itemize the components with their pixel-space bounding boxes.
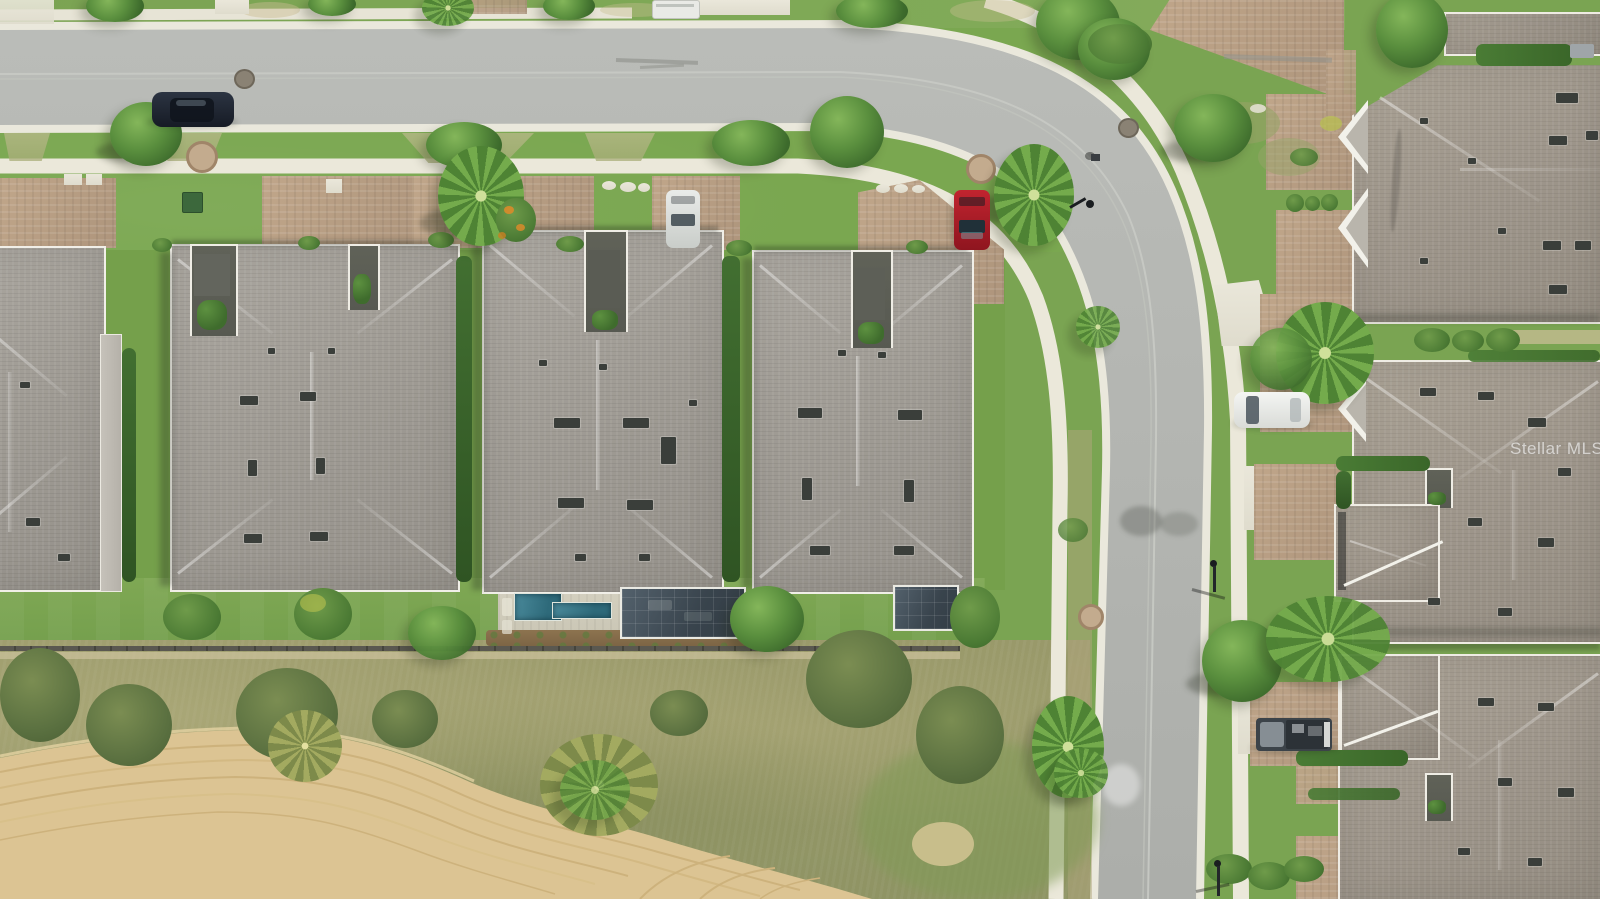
courtyard-plants: [1428, 492, 1446, 505]
lanai-furniture: [684, 612, 712, 621]
front-hedge: [298, 236, 320, 250]
flower-orange: [498, 232, 506, 239]
mailbox: [1091, 154, 1100, 161]
dry-sand-patch: [912, 822, 974, 866]
roof-vent: [575, 554, 586, 561]
roof-vent: [268, 348, 275, 354]
van-white-top: [652, 0, 700, 19]
top-driveway-stub: [215, 0, 249, 14]
deck-chair: [502, 620, 512, 634]
house-west-shadow: [160, 252, 172, 586]
roof-vent: [1498, 608, 1512, 616]
house-west-shadow: [742, 258, 754, 588]
roof-vent: [1528, 418, 1546, 427]
house-roof-1: [0, 246, 106, 592]
side-yard-hedge: [122, 348, 136, 582]
flower-orange: [516, 224, 525, 231]
backyard-tree: [730, 586, 804, 652]
roof-vent: [1420, 258, 1428, 264]
roof-vent: [1468, 518, 1482, 526]
roof-vent: [1575, 241, 1591, 250]
roof-vent: [1586, 131, 1598, 140]
dry-grass-patch: [950, 0, 1035, 22]
roof-vent: [810, 546, 830, 555]
roof-vent: [623, 418, 649, 428]
garage-recess: [194, 254, 230, 296]
garage-recess: [855, 268, 885, 320]
truck-cargo: [1308, 726, 1322, 736]
road-smudge: [1160, 512, 1198, 536]
roof-vent: [1538, 703, 1554, 711]
screened-lanai: [893, 585, 959, 631]
curve-palm: [994, 144, 1074, 246]
roof-vent: [1543, 241, 1561, 250]
roof-vent: [240, 396, 258, 405]
utility-pad: [912, 185, 925, 193]
roof-vent: [898, 410, 922, 420]
west-bush: [1058, 518, 1088, 542]
backyard-bush: [950, 586, 1000, 648]
curve-tree-east: [1174, 94, 1252, 162]
roof-vent: [599, 364, 607, 370]
roof-vent: [894, 546, 914, 555]
hedge-ball: [1321, 194, 1338, 211]
truck-cargo: [1292, 724, 1304, 733]
house-south-shadow: [1352, 314, 1600, 322]
courtyard-hedge: [592, 310, 618, 330]
scrub-trees: [916, 686, 1004, 784]
front-hedge: [726, 240, 752, 256]
utility-pad: [620, 182, 636, 192]
aerial-photo-neighborhood: Stellar MLS: [0, 0, 1600, 899]
hedge-l: [1336, 456, 1430, 471]
hedge-ball: [1305, 196, 1320, 211]
roof-vent: [1556, 93, 1578, 103]
palmetto-green: [560, 760, 630, 820]
roof-vent: [627, 500, 653, 510]
side-yard-hedge: [456, 256, 472, 582]
casita-hedge: [1476, 44, 1572, 66]
roof-vent: [310, 532, 328, 541]
roof-vent: [244, 534, 262, 543]
garage-recess: [588, 250, 620, 308]
ac-unit: [1570, 44, 1594, 58]
roof-skylight: [661, 437, 676, 464]
roof-vent: [878, 352, 886, 358]
yellow-bush: [1320, 116, 1342, 131]
utility-box-green: [182, 192, 203, 213]
roof-vent: [904, 480, 914, 502]
shrub-row: [1486, 328, 1520, 352]
roof-vent: [1549, 285, 1567, 294]
courtyard-hedge: [353, 274, 371, 304]
roof-vent: [1420, 118, 1428, 124]
west-palm-north: [1076, 306, 1120, 348]
white-flowers: [1250, 104, 1266, 113]
roof-ridge: [596, 340, 600, 490]
front-hedge: [152, 238, 172, 252]
roof-vent: [248, 460, 257, 476]
utility-pad: [876, 184, 890, 193]
roof-vent: [1549, 136, 1567, 145]
roof-ridge: [1498, 740, 1502, 870]
backyard-bush: [163, 594, 221, 640]
side-wing-wall: [100, 334, 122, 592]
shrub-row: [1452, 330, 1484, 352]
sedan-highlight: [176, 100, 206, 106]
lanai-furniture: [648, 600, 672, 610]
roof-vent: [838, 350, 846, 356]
side-yard-hedge: [722, 256, 740, 582]
roof-vent: [689, 400, 697, 406]
roof-vent: [802, 478, 812, 500]
roof-vent: [1428, 598, 1440, 605]
tree-r2: [1250, 328, 1312, 390]
roof-vent: [1528, 858, 1542, 866]
roof-ridge: [310, 352, 314, 480]
scrub-cluster: [0, 648, 80, 742]
garage-door-shadow: [1338, 512, 1346, 590]
roof-vent: [1478, 392, 1494, 400]
top-corner-pad: [0, 0, 54, 24]
roof-ridge-line: [1460, 168, 1600, 171]
hedge-line: [1468, 350, 1600, 362]
br-bush: [1206, 854, 1252, 884]
roof-vent: [1498, 778, 1512, 786]
red-windshield-glint: [961, 232, 983, 239]
roof-ridge: [856, 356, 860, 486]
roof-vent: [58, 554, 70, 561]
silver-windshield: [671, 214, 695, 226]
roof-vent: [1478, 698, 1494, 706]
hedge-row-r3: [1308, 788, 1400, 800]
utility-pad: [602, 181, 616, 190]
shrub-row: [1414, 328, 1450, 352]
courtyard-plants: [1428, 800, 1446, 814]
house-west-shadow: [472, 238, 484, 590]
white-suv-windshield: [1246, 396, 1259, 424]
scrub-cluster: [372, 690, 438, 748]
palmetto: [268, 710, 342, 782]
roof-vent: [554, 418, 580, 428]
scrub-cluster: [86, 684, 172, 766]
front-hedge: [556, 236, 584, 252]
roof-vent: [26, 518, 40, 526]
dry-grass-patch: [240, 2, 300, 18]
backyard-bush-yellow: [300, 594, 326, 612]
west-palm: [1054, 748, 1108, 798]
br-bush: [1284, 856, 1324, 882]
red-rear-glass: [959, 197, 985, 206]
streetlight-head: [1086, 200, 1094, 208]
hedge-l: [1336, 471, 1351, 509]
screened-lanai: [620, 587, 746, 639]
stellar-mls-watermark: Stellar MLS: [1510, 439, 1600, 459]
utility-pad: [638, 183, 650, 192]
utility-pad: [894, 184, 908, 193]
roof-vent: [328, 348, 335, 354]
top-driveway-stub: [690, 0, 790, 15]
front-hedge: [428, 232, 454, 248]
utility-pad: [326, 179, 342, 193]
roof-vent: [639, 554, 650, 561]
paver-medallion: [186, 141, 218, 173]
utility-pad: [64, 174, 82, 185]
pool-lap-lane: [552, 602, 612, 619]
roof-vent: [316, 458, 325, 474]
van-roof-lines: [656, 4, 694, 7]
roof-vent: [300, 392, 316, 401]
backyard-tree: [408, 606, 476, 660]
roof-vent: [1558, 788, 1574, 797]
hedge-ball: [1286, 194, 1304, 212]
roof-vent: [798, 408, 822, 418]
front-hedge: [906, 240, 928, 254]
truck-tailgate: [1324, 722, 1330, 747]
deck-chair: [502, 598, 512, 616]
roof-ridge: [1512, 470, 1516, 580]
courtyard-hedge: [858, 322, 884, 344]
verge-tree: [712, 120, 790, 166]
truck-cab-roof: [1260, 722, 1284, 747]
curve-bush-east: [1290, 148, 1318, 166]
roof-ridge: [8, 372, 12, 532]
roof-vent: [1420, 388, 1436, 396]
white-suv-rear: [1290, 398, 1301, 422]
roof-vent: [1458, 848, 1470, 855]
roof-vent: [1468, 158, 1476, 164]
utility-pad: [86, 174, 102, 185]
manhole: [1118, 118, 1139, 138]
courtyard-hedge: [197, 300, 227, 330]
paver-court: [0, 178, 116, 248]
roof-vent: [558, 498, 584, 508]
streetlight-pole: [1213, 566, 1216, 592]
manhole: [234, 69, 255, 89]
verge-tree: [810, 96, 884, 168]
flower-orange: [504, 206, 514, 214]
scrub-cluster: [650, 690, 708, 736]
streetlight-pole: [1217, 866, 1220, 896]
scrub-trees: [806, 630, 912, 728]
east-palms: [1266, 596, 1390, 682]
road-smudge: [1120, 506, 1162, 536]
roof-vent: [1538, 538, 1554, 547]
paver-medallion: [966, 154, 996, 184]
roof-vent: [20, 382, 30, 388]
silver-rear-glass: [671, 196, 695, 204]
roof-vent: [539, 360, 547, 366]
curve-bush: [1088, 24, 1152, 64]
roof-vent: [1558, 468, 1571, 476]
paver-medallion: [1078, 604, 1104, 630]
roof-vent: [1498, 228, 1506, 234]
paver-drive-r2: [1254, 464, 1344, 560]
